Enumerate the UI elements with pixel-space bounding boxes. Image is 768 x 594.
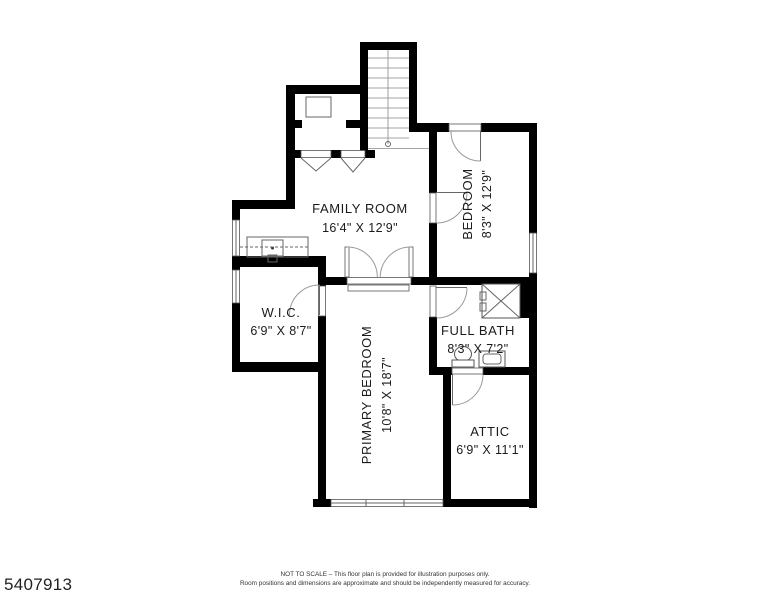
wall xyxy=(232,303,240,365)
wall xyxy=(429,317,437,368)
window-opening xyxy=(341,151,365,158)
wall xyxy=(326,277,347,285)
door-leaf xyxy=(345,247,349,277)
wall xyxy=(232,200,295,209)
footer-line2: Room positions and dimensions are approx… xyxy=(240,580,530,587)
door-opening xyxy=(430,193,436,223)
door-swing-arc xyxy=(437,288,468,318)
wall xyxy=(360,42,417,50)
room-label-wic: W.I.C. xyxy=(262,305,301,320)
room-dims-bedroom: 8'3" X 12'9" xyxy=(480,170,494,239)
staircase xyxy=(368,50,429,149)
attic-door xyxy=(452,368,483,405)
wall xyxy=(295,120,302,128)
primary-bedroom-windows xyxy=(331,500,443,507)
wall xyxy=(409,42,417,132)
room-label-attic: ATTIC xyxy=(470,424,510,439)
room-label-bath: FULL BATH xyxy=(441,323,515,338)
wall xyxy=(232,200,240,220)
wall xyxy=(409,123,449,132)
floor-plan: FAMILY ROOM 16'4" X 12'9" BEDROOM 8'3" X… xyxy=(0,0,768,594)
room-label-bedroom: BEDROOM xyxy=(460,168,475,239)
bedroom-window xyxy=(530,233,537,273)
wall xyxy=(232,256,326,267)
wall xyxy=(286,150,301,158)
wall xyxy=(481,123,529,132)
room-dims-primary: 10'8" X 18'7" xyxy=(380,357,394,433)
door-leaf xyxy=(409,247,413,277)
door-opening xyxy=(430,286,436,317)
bedroom-top-door xyxy=(449,124,481,161)
door-opening xyxy=(449,124,481,131)
bathroom-door xyxy=(430,286,467,318)
door-opening xyxy=(347,278,411,285)
door-opening xyxy=(452,368,483,374)
door-swing-arc xyxy=(347,247,377,277)
wall xyxy=(318,256,326,286)
toilet-tank xyxy=(452,360,474,367)
room-label-primary: PRIMARY BEDROOM xyxy=(359,326,374,465)
room-dims-wic: 6'9" X 8'7" xyxy=(250,324,311,338)
wall xyxy=(360,42,368,154)
wall xyxy=(443,374,451,500)
wall xyxy=(318,316,326,372)
wall xyxy=(529,272,537,508)
closet-box xyxy=(306,97,331,117)
door-swing-arc xyxy=(380,247,411,278)
door-swing-arc xyxy=(453,375,484,406)
wall xyxy=(331,150,341,158)
window-opening xyxy=(301,151,331,158)
double-french-doors xyxy=(345,247,413,291)
room-label-family: FAMILY ROOM xyxy=(312,201,408,216)
floor-plan-drawing: FAMILY ROOM 16'4" X 12'9" BEDROOM 8'3" X… xyxy=(0,0,768,594)
room-dims-family: 16'4" X 12'9" xyxy=(322,221,398,235)
wall xyxy=(286,85,295,207)
listing-id: 5407913 xyxy=(4,575,72,594)
wall xyxy=(529,123,537,234)
footer-line1: NOT TO SCALE – This floor plan is provid… xyxy=(281,571,490,578)
wall xyxy=(443,499,536,507)
casement-window-icon xyxy=(301,158,331,171)
wall xyxy=(483,367,536,375)
wall xyxy=(429,367,452,375)
wall xyxy=(232,362,326,372)
casement-window-icon xyxy=(341,158,365,172)
landing-room xyxy=(301,97,365,172)
wall xyxy=(429,223,437,278)
wall xyxy=(429,131,437,193)
wall xyxy=(286,85,367,94)
door-swing-arc xyxy=(451,132,481,162)
shower xyxy=(480,284,520,318)
wall xyxy=(346,120,368,128)
wall xyxy=(365,150,375,158)
room-dims-bath: 8'3" X 7'2" xyxy=(447,342,508,356)
wall xyxy=(313,499,331,507)
wall xyxy=(318,372,326,504)
room-dims-attic: 6'9" X 11'1" xyxy=(456,443,524,457)
footer: NOT TO SCALE – This floor plan is provid… xyxy=(4,571,530,594)
door-threshold xyxy=(348,285,409,291)
